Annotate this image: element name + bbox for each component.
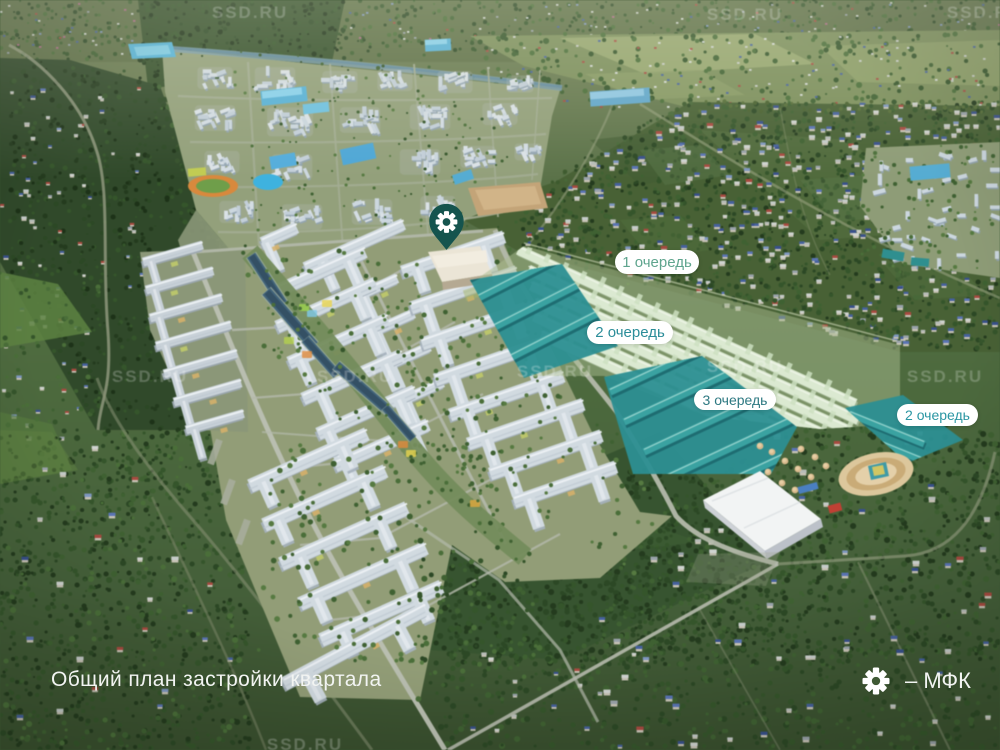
svg-text:SSD.RU: SSD.RU [212, 3, 288, 22]
svg-text:SSD.RU: SSD.RU [707, 5, 783, 24]
svg-text:SSD.RU: SSD.RU [267, 735, 343, 750]
svg-text:SSD.RU: SSD.RU [517, 362, 593, 381]
svg-text:SSD.RU: SSD.RU [317, 367, 393, 386]
svg-text:SSD.RU: SSD.RU [907, 367, 983, 386]
svg-text:SSD.RU: SSD.RU [112, 367, 188, 386]
svg-text:SSD.RU: SSD.RU [707, 357, 783, 376]
svg-text:SSD.RU: SSD.RU [947, 3, 1000, 22]
